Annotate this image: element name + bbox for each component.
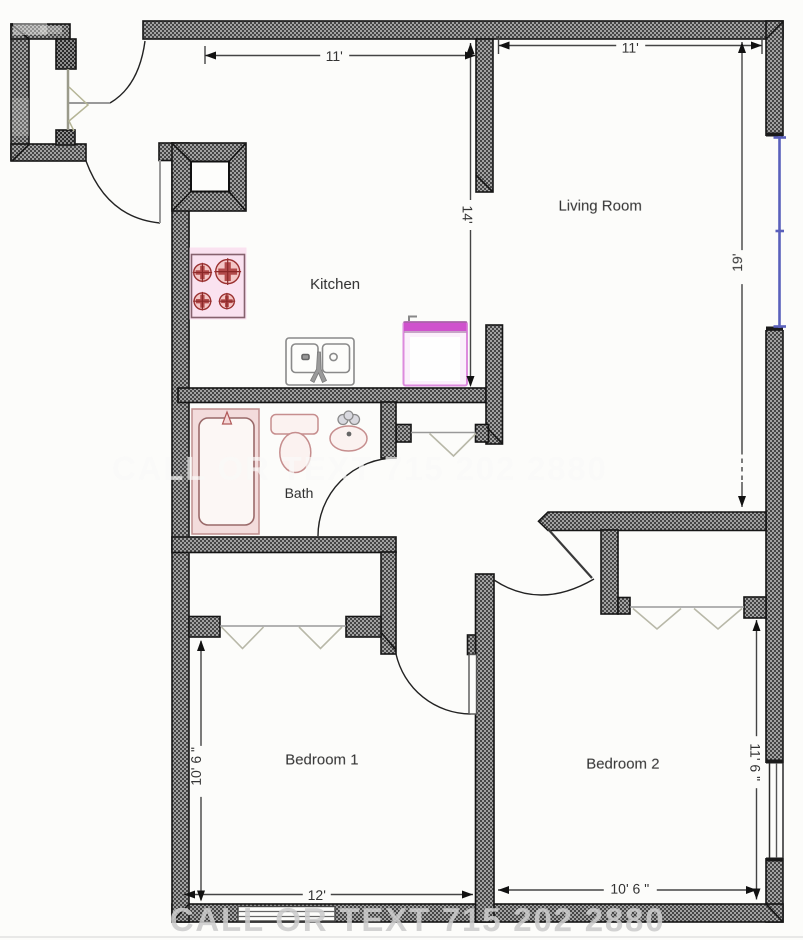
svg-text:Kitchen: Kitchen: [310, 276, 360, 293]
svg-text:Bath: Bath: [285, 485, 314, 501]
svg-text:10' 6 ": 10' 6 ": [610, 881, 649, 897]
svg-text:CALL OR TEXT 715 202 2880: CALL OR TEXT 715 202 2880: [170, 901, 666, 938]
svg-text:11': 11': [326, 48, 343, 64]
svg-text:14': 14': [460, 205, 476, 223]
svg-text:Bedroom 1: Bedroom 1: [285, 751, 358, 768]
svg-text:11': 11': [622, 40, 639, 56]
svg-text:10' 6 ": 10' 6 ": [188, 747, 204, 786]
svg-text:19': 19': [729, 254, 745, 272]
svg-text:Living Room: Living Room: [558, 198, 641, 215]
svg-text:11' 6 ": 11' 6 ": [747, 743, 763, 781]
svg-text:Bedroom 2: Bedroom 2: [586, 756, 659, 773]
svg-text:CALL OR TEXT 715 202 2880: CALL OR TEXT 715 202 2880: [112, 450, 608, 487]
